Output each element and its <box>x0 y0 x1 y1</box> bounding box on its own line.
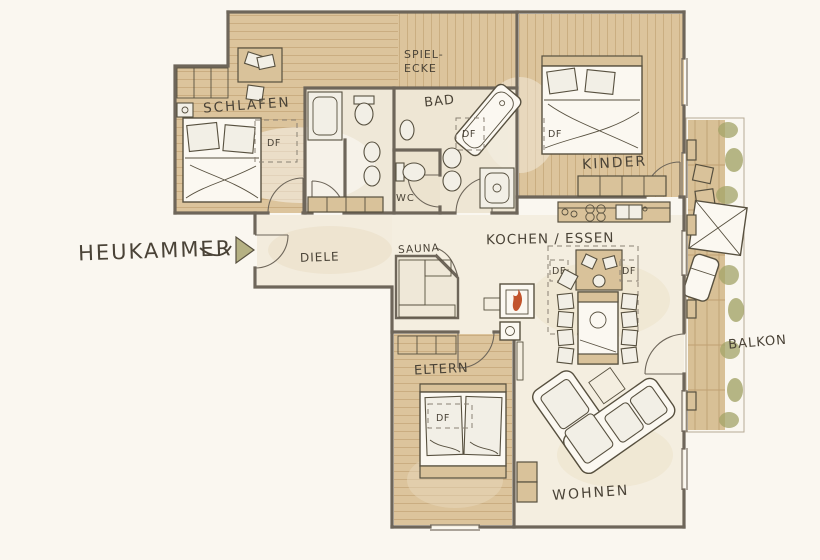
side-shelf <box>517 462 537 482</box>
sink <box>400 120 414 140</box>
df-marker-island-right: DF <box>622 266 636 277</box>
label-eltern: ELTERN <box>414 361 469 379</box>
kitchen-counter <box>558 202 670 222</box>
sink <box>443 171 461 191</box>
bed-schlafen <box>183 118 261 202</box>
balcony-chair <box>693 164 714 183</box>
footboard <box>420 466 506 478</box>
floor-plan: HEUKAMMER SCHLAFEN SPIEL- ECKE BAD WC KI… <box>0 0 820 560</box>
df-marker-eltern: DF <box>436 413 450 424</box>
df-marker-schlafen: DF <box>267 138 281 149</box>
df-marker-bad: DF <box>462 129 476 140</box>
df-marker-island-left: DF <box>552 266 566 277</box>
label-kinder: KINDER <box>582 154 648 173</box>
label-spielecke-1: SPIEL- <box>404 48 444 61</box>
headboard <box>420 384 506 392</box>
balcony-table <box>689 201 747 256</box>
toilet <box>354 96 374 125</box>
balcony <box>682 118 747 432</box>
label-diele: DIELE <box>300 249 340 264</box>
sink <box>364 166 380 186</box>
kitchen-sink <box>616 205 647 219</box>
bath-cabinet <box>308 197 383 212</box>
sink <box>443 148 461 168</box>
label-sauna: SAUNA <box>398 242 440 256</box>
label-spielecke-2: ECKE <box>404 62 437 75</box>
nightstand <box>177 103 193 117</box>
label-wc: WC <box>396 193 415 204</box>
label-kochen-essen: KOCHEN / ESSEN <box>486 230 615 248</box>
bed-eltern <box>420 392 506 466</box>
side-shelf <box>517 482 537 502</box>
wc-toilet <box>396 163 425 181</box>
headboard <box>542 56 642 66</box>
furniture-eltern <box>420 384 506 478</box>
sink <box>364 142 380 162</box>
label-bad: BAD <box>423 92 455 110</box>
floor-plan-canvas: HEUKAMMER SCHLAFEN SPIEL- ECKE BAD WC KI… <box>0 0 820 560</box>
bed-kinder <box>542 66 642 154</box>
df-marker-kinder: DF <box>548 129 562 140</box>
